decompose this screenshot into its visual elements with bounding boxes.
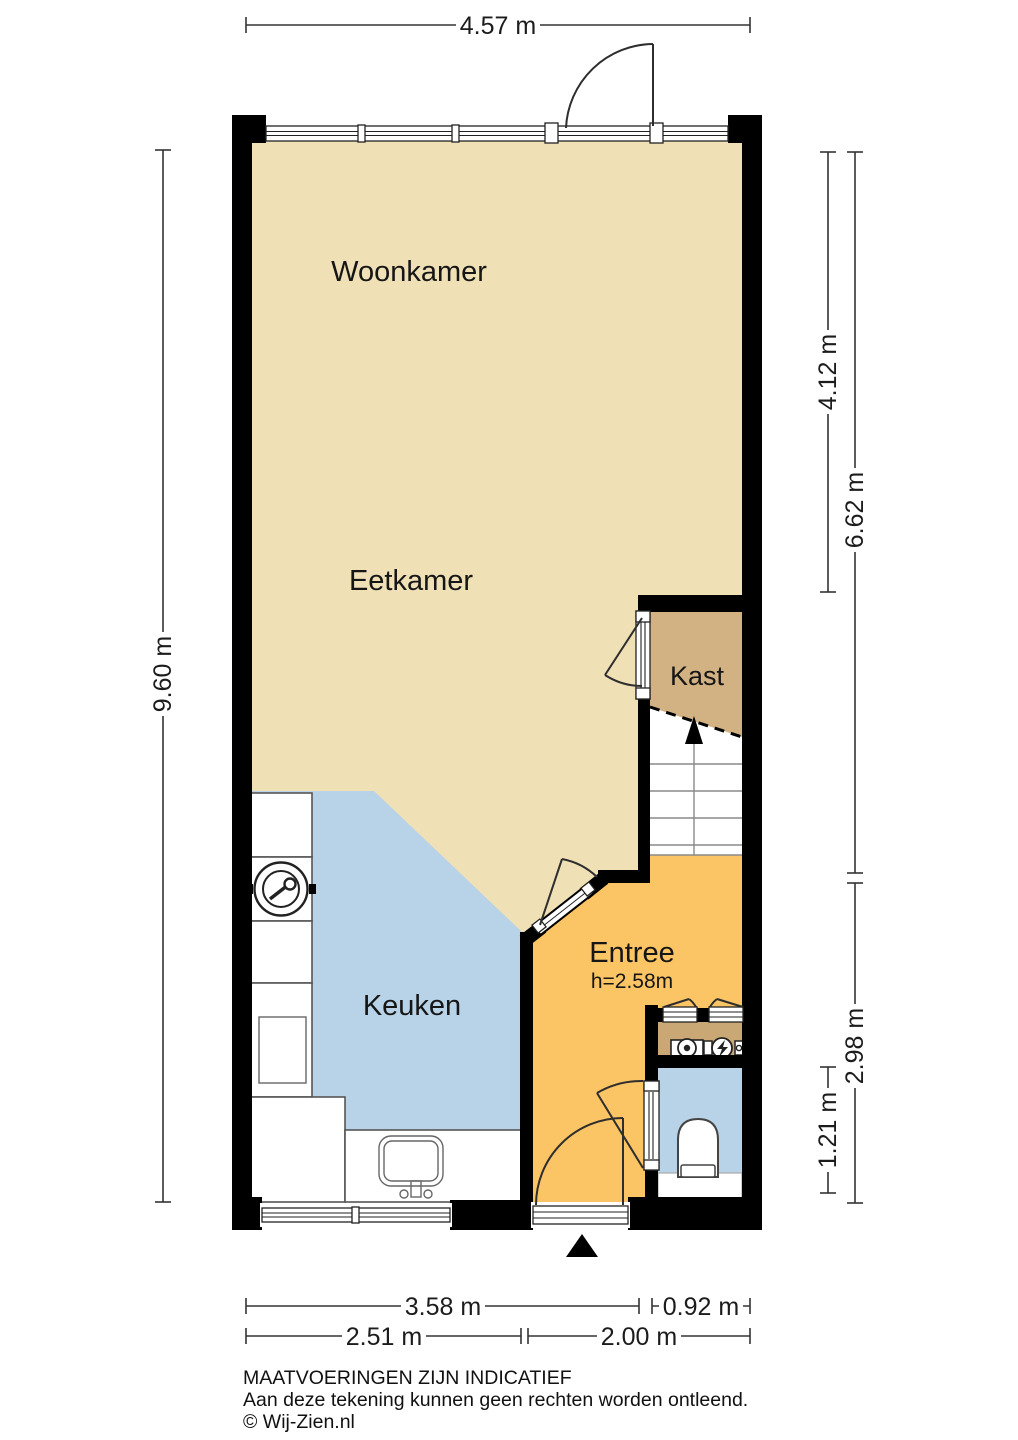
dim-right-4: 1.21 m: [814, 1067, 842, 1193]
dim-label-right-1: 4.12 m: [814, 334, 842, 410]
wall-corner-top-right: [728, 115, 762, 143]
balcony-door: [566, 44, 653, 128]
wall-bottom-mid: [450, 1200, 533, 1230]
dim-label-bottom-1b: 0.92 m: [663, 1293, 739, 1321]
dim-label-right-2: 6.62 m: [841, 472, 869, 548]
dim-label-top: 4.57 m: [460, 12, 536, 40]
room-fills: [250, 141, 742, 1202]
label-keuken: Keuken: [363, 990, 461, 1022]
dim-bottom-2b: 2.00 m: [528, 1322, 750, 1351]
dim-label-right-3: 2.98 m: [841, 1008, 869, 1084]
water-meter-icon: [671, 1039, 703, 1057]
wall-corner-bottom-left: [232, 1197, 262, 1230]
dim-bottom-2a: 2.51 m: [246, 1322, 521, 1351]
wall-left: [232, 115, 252, 1230]
label-entree-height: h=2.58m: [591, 970, 673, 993]
floorplan-page: 4.57 m 9.60 m 4.12 m 6.62 m: [0, 0, 1018, 1440]
footer: MAATVOERINGEN ZIJN INDICATIEF Aan deze t…: [243, 1367, 748, 1433]
dim-label-left: 9.60 m: [149, 636, 177, 712]
footer-disclaimer-1: MAATVOERINGEN ZIJN INDICATIEF: [243, 1367, 572, 1389]
label-eetkamer: Eetkamer: [349, 565, 473, 597]
footer-disclaimer-2: Aan deze tekening kunnen geen rechten wo…: [243, 1389, 748, 1411]
kitchen-counter: [250, 793, 312, 857]
dim-right-1: 4.12 m: [814, 152, 842, 592]
wall-keuken-entree: [520, 932, 533, 1202]
dim-label-bottom-2b: 2.00 m: [601, 1323, 677, 1351]
dim-top: 4.57 m: [246, 11, 750, 40]
kitchen-counter: [250, 921, 312, 983]
dim-left: 9.60 m: [149, 150, 177, 1202]
dim-label-bottom-1a: 3.58 m: [405, 1293, 481, 1321]
dim-label-bottom-2a: 2.51 m: [346, 1323, 422, 1351]
sink-counter: [345, 1130, 522, 1202]
window-top: [266, 123, 728, 143]
entrance-triangle-icon: [566, 1234, 598, 1257]
label-kast: Kast: [670, 661, 725, 691]
dim-right-2: 6.62 m: [841, 152, 869, 873]
kitchen-counter: [250, 1097, 345, 1202]
footer-copyright: © Wij-Zien.nl: [243, 1411, 355, 1433]
wall-corner-top-left: [232, 115, 266, 143]
dim-bottom-1a: 3.58 m: [246, 1292, 639, 1321]
floorplan-drawing: 4.57 m 9.60 m 4.12 m 6.62 m: [0, 0, 1018, 1440]
window-bottom: [260, 1203, 452, 1227]
toilet-icon: [678, 1119, 718, 1177]
label-woonkamer: Woonkamer: [331, 256, 487, 288]
dim-bottom-1b: 0.92 m: [652, 1292, 750, 1321]
dim-right-3: 2.98 m: [841, 883, 869, 1203]
wall-meterkast-toilet: [645, 1055, 762, 1068]
dim-label-right-4: 1.21 m: [814, 1092, 842, 1168]
label-entree: Entree: [589, 937, 674, 969]
wall-kast-top: [638, 595, 742, 612]
